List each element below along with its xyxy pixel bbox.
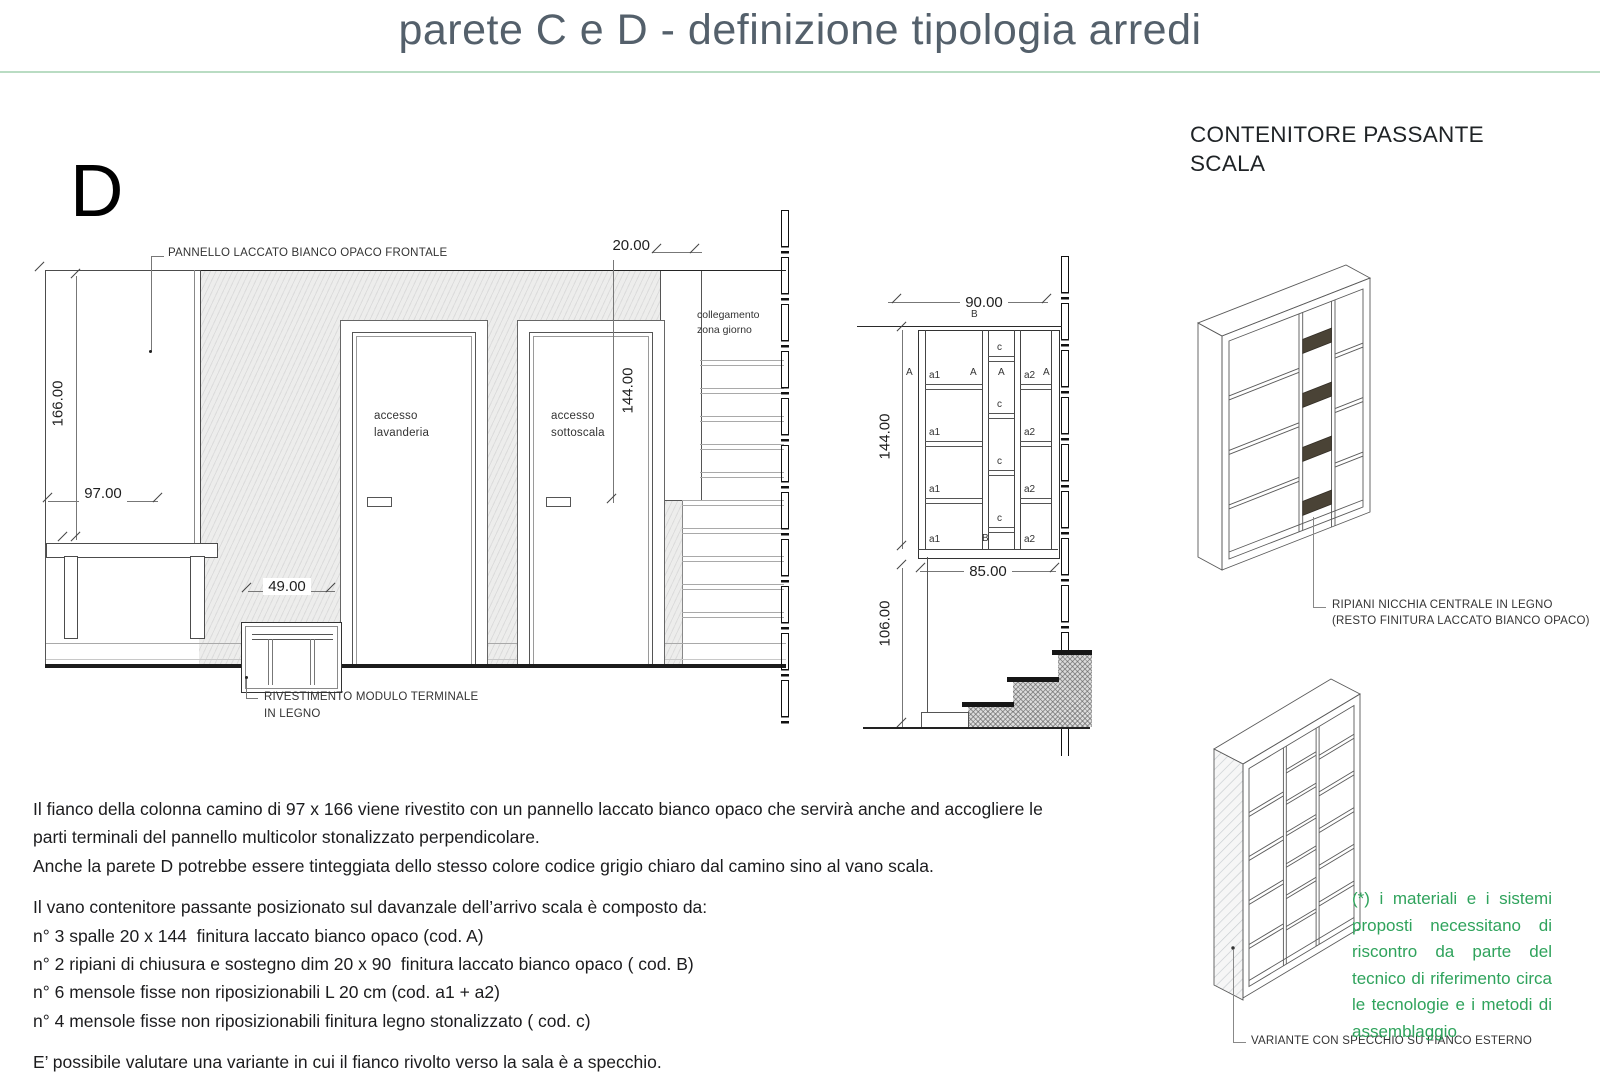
module-line [252, 634, 333, 635]
arrival-floor-line [857, 326, 1062, 327]
leader-line [1233, 1042, 1246, 1043]
stair-rail-line [682, 589, 784, 590]
iso-shelf-wood-niche [1190, 260, 1380, 610]
stair-rail-line [682, 556, 784, 557]
door-handle [367, 497, 392, 507]
dim-line-144-shelf [902, 330, 903, 549]
dim-shelf-width: 90.00 [960, 294, 1008, 311]
stair-rail-line [682, 505, 784, 506]
wood-shelf [1303, 328, 1332, 353]
parapet-wall-line [927, 557, 928, 713]
code-label-a1: a1 [929, 370, 940, 381]
code-label-A: A [906, 367, 913, 378]
module-line [272, 639, 273, 685]
leader-line [246, 679, 247, 698]
mirror-side-face [1214, 749, 1243, 1000]
stair-tread [1052, 650, 1092, 655]
stair-rail-line [700, 449, 784, 450]
shelf-line [1020, 446, 1051, 447]
dim-module-width: 49.00 [263, 578, 311, 595]
code-label-a1: a1 [929, 534, 940, 545]
code-label-B: B [982, 533, 989, 544]
stair-rail-line [682, 617, 784, 618]
leader-line [151, 256, 152, 352]
shelf-spalla-line [925, 330, 926, 549]
wood-shelf [1303, 490, 1332, 515]
code-label-A: A [970, 367, 977, 378]
drawing-sheet: parete C e D - definizione tipologia arr… [0, 0, 1600, 1091]
description-text: Il fianco della colonna camino di 97 x 1… [33, 795, 1113, 1077]
module-line [310, 639, 311, 685]
code-label-a1: a1 [929, 484, 940, 495]
right-section-heading: CONTENITORE PASSANTE SCALA [1190, 120, 1484, 178]
dim-shelf-inner-width: 85.00 [964, 563, 1012, 580]
materials-note: (*) i materiali e i sistemi proposti nec… [1352, 886, 1552, 1045]
code-label-A: A [1043, 367, 1050, 378]
panel-annotation: PANNELLO LACCATO BIANCO OPACO FRONTALE [168, 247, 447, 259]
stair-rail-line [700, 472, 784, 473]
shelf-line [925, 389, 982, 390]
panel-edge-line [194, 270, 195, 543]
shelf-line [925, 441, 982, 442]
iso1-annotation: RIPIANI NICCHIA CENTRALE IN LEGNO (RESTO… [1332, 598, 1590, 629]
ground-line [863, 727, 1090, 729]
body-line: n° 6 mensole fisse non riposizionabili L… [33, 978, 1113, 1006]
body-line: Anche la parete D potrebbe essere tinteg… [33, 852, 1113, 880]
dim-shelf-height: 144.00 [877, 397, 894, 477]
code-label-B: B [971, 309, 978, 320]
leader-line [1233, 950, 1234, 1042]
shelf-line [988, 418, 1014, 419]
module-line [314, 639, 315, 685]
stair-rail-line [700, 421, 784, 422]
stair-rail-line [682, 584, 784, 585]
wood-shelf [1303, 436, 1332, 461]
shelf-line [988, 361, 1014, 362]
stair-rail-line [700, 393, 784, 394]
spacer [33, 1035, 1113, 1048]
page-title: parete C e D - definizione tipologia arr… [0, 6, 1600, 55]
door1-label: accesso lavanderia [374, 408, 429, 442]
dim-parapet-height: 106.00 [877, 584, 894, 664]
section-cut-line [781, 210, 789, 727]
dim-tick [35, 262, 45, 272]
leader-dot [149, 350, 152, 353]
stair-rail-line [682, 561, 784, 562]
stair-tread [962, 702, 1014, 707]
stair-rail-line [682, 612, 784, 613]
shelf-spalla-line [982, 330, 983, 549]
shelf-line [1020, 503, 1051, 504]
body-line: n° 3 spalle 20 x 144 finitura laccato bi… [33, 922, 1113, 950]
dim-line-144 [613, 260, 614, 503]
shelf-bottom-line [918, 549, 1058, 550]
stair-tread [1007, 677, 1059, 682]
module-annotation: RIVESTIMENTO MODULO TERMINALE IN LEGNO [264, 689, 478, 722]
code-label-c: c [997, 342, 1002, 353]
door2-label: accesso sottoscala [551, 408, 605, 442]
fireplace-panel [45, 270, 201, 545]
dim-panel-width: 97.00 [79, 485, 127, 502]
code-label-A: A [998, 367, 1005, 378]
dim-panel-height: 166.00 [50, 364, 67, 444]
code-label-a2: a2 [1024, 534, 1035, 545]
code-label-a2: a2 [1024, 427, 1035, 438]
spacer [33, 880, 1113, 893]
stair-rail-line [700, 444, 784, 445]
title-divider-line [0, 71, 1600, 73]
stair-rail-line [700, 365, 784, 366]
stair-rail-line [682, 500, 784, 501]
stair-rail-line [700, 360, 784, 361]
iso-shelf-mirror-variant [1183, 652, 1378, 1052]
dim-line-106 [902, 568, 903, 727]
bench-leg [190, 556, 205, 639]
leader-line [151, 256, 164, 257]
leader-line [1313, 517, 1314, 607]
shelf-line [988, 470, 1014, 471]
terminal-module-inner [245, 626, 338, 689]
shelf-line [1020, 441, 1051, 442]
shelf-line [925, 384, 982, 385]
shelf-spalla-line [988, 330, 989, 549]
stair-step-hatch [1013, 682, 1058, 727]
leader-line [1313, 607, 1326, 608]
dim-shelf-depth: 20.00 [560, 237, 650, 254]
shelf-spalla-line [1014, 330, 1015, 549]
body-line: E’ possibile valutare una variante in cu… [33, 1048, 1113, 1076]
module-line [252, 639, 333, 640]
shelf-line [988, 413, 1014, 414]
stair-parapet-column [660, 271, 702, 501]
bench-leg [64, 556, 78, 639]
code-label-c: c [997, 513, 1002, 524]
code-label-a1: a1 [929, 427, 940, 438]
stair-rail-line [700, 388, 784, 389]
door-handle [546, 497, 571, 507]
shelf-spalla-line [1051, 330, 1052, 549]
shelf-line [1020, 498, 1051, 499]
stair-rail-line [700, 477, 784, 478]
shelf-line [988, 527, 1014, 528]
code-label-a2: a2 [1024, 370, 1035, 381]
dim-door-height: 144.00 [620, 355, 637, 427]
code-label-c: c [997, 456, 1002, 467]
shelf-front-view [918, 330, 1060, 559]
leader-line [246, 698, 258, 699]
module-line [268, 639, 269, 685]
shelf-line [988, 532, 1014, 533]
dim-line-20 [652, 252, 702, 253]
code-label-c: c [997, 399, 1002, 410]
stair-step-hatch [1058, 655, 1092, 727]
stair-step-hatch [968, 707, 1013, 727]
shelf-spalla-line [1020, 330, 1021, 549]
shelf-line [988, 475, 1014, 476]
body-line: n° 4 mensole fisse non riposizionabili f… [33, 1007, 1113, 1035]
stair-rail-line [700, 416, 784, 417]
stair-rail-line [682, 533, 784, 534]
wall-section-letter: D [70, 148, 123, 233]
code-label-a2: a2 [1024, 484, 1035, 495]
body-line: Il fianco della colonna camino di 97 x 1… [33, 795, 1113, 823]
shelf-line [1020, 384, 1051, 385]
shelf-line [925, 446, 982, 447]
floor-line [45, 664, 786, 668]
wood-shelf [1303, 382, 1332, 407]
shelf-line [1020, 389, 1051, 390]
shelf-line [988, 356, 1014, 357]
shelf-line [925, 503, 982, 504]
shelf-line [925, 498, 982, 499]
body-line: n° 2 ripiani di chiusura e sostegno dim … [33, 950, 1113, 978]
body-line: parti terminali del pannello multicolor … [33, 823, 1113, 851]
body-line: Il vano contenitore passante posizionato… [33, 893, 1113, 921]
stair-rail-line [682, 528, 784, 529]
stair-connection-label: collegamento zona giorno [697, 308, 759, 338]
